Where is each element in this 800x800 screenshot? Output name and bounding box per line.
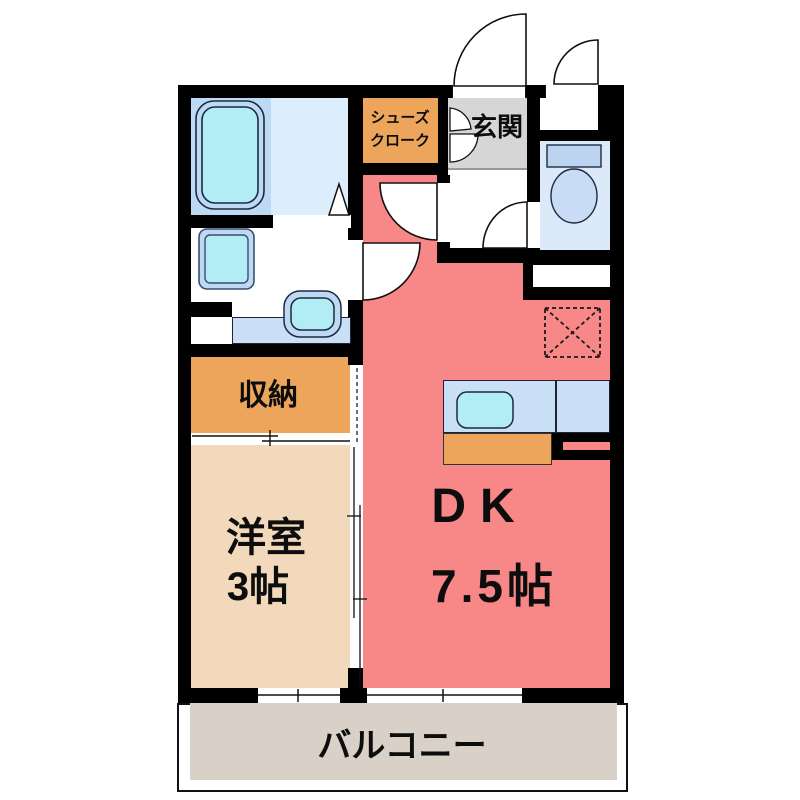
shoe-closet-door-fold-upper-icon	[450, 108, 471, 131]
compartment-door-swing-icon	[554, 40, 598, 84]
shoe-closet-label-line1: シューズ	[370, 111, 429, 126]
entrance-door-swing-icon	[454, 14, 526, 86]
bathtub	[202, 107, 258, 203]
refrigerator-space	[545, 308, 600, 357]
washroom-door-swing-icon	[363, 243, 420, 300]
storage-sliding-door-icon	[192, 430, 350, 446]
dk-label: DK	[431, 483, 528, 531]
entrance-label: 玄関	[471, 114, 523, 140]
bathroom-door-icon	[329, 184, 349, 215]
dk-size-label: 7.5帖	[431, 563, 557, 609]
western-room-window-icon	[258, 689, 340, 702]
western-room-size-label: 3帖	[227, 567, 289, 607]
toilet-door-swing-icon	[483, 202, 527, 248]
toilet-bowl	[551, 169, 597, 223]
floor-plan: シューズ クローク 玄関 収納 洋室 3帖 DK 7.5帖 バルコニー	[0, 0, 800, 800]
dk-door-swing-icon	[380, 183, 437, 240]
storage-label: 収納	[238, 381, 298, 411]
wash-basin	[291, 298, 334, 330]
shoe-closet-label-line2: クローク	[370, 134, 430, 149]
dk-window-icon	[367, 689, 522, 702]
washing-machine	[205, 235, 248, 283]
kitchen-sink	[457, 392, 513, 428]
western-room-label: 洋室	[226, 518, 306, 558]
toilet-tank	[547, 145, 601, 167]
partition-sliding-door-icon	[347, 447, 367, 686]
balcony-label: バルコニー	[317, 729, 486, 763]
